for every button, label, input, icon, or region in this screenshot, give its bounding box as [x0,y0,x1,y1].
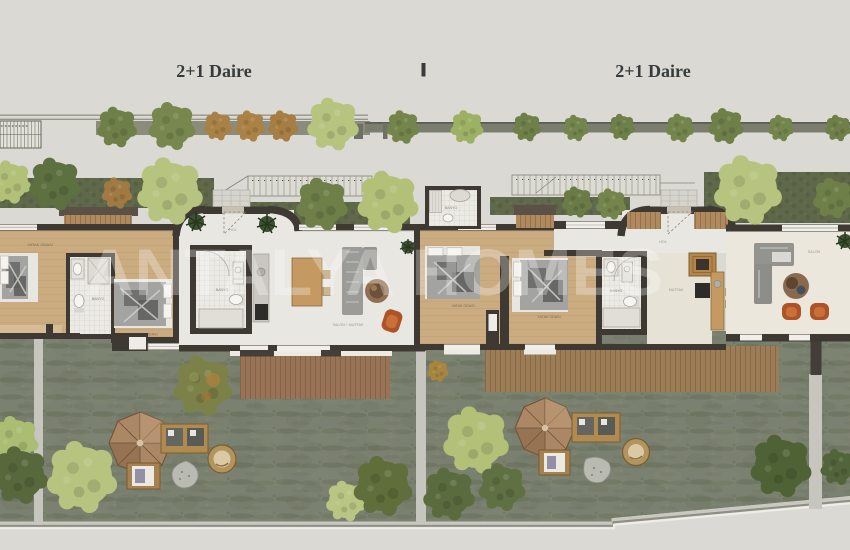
svg-text:SALON: SALON [808,250,821,254]
svg-text:ANTALYA HOMES: ANTALYA HOMES [85,235,663,309]
svg-text:YATAK ODASI: YATAK ODASI [537,315,560,319]
svg-text:MUTFAK: MUTFAK [669,288,684,292]
svg-text:2+1 Daire: 2+1 Daire [176,61,251,81]
svg-text:YATAK ODASI: YATAK ODASI [27,242,53,247]
svg-text:HOL: HOL [229,228,236,232]
svg-text:BANYO: BANYO [445,206,458,210]
svg-text:SALON + MUTFAK: SALON + MUTFAK [333,323,364,327]
svg-text:2+1 Daire: 2+1 Daire [615,61,690,81]
